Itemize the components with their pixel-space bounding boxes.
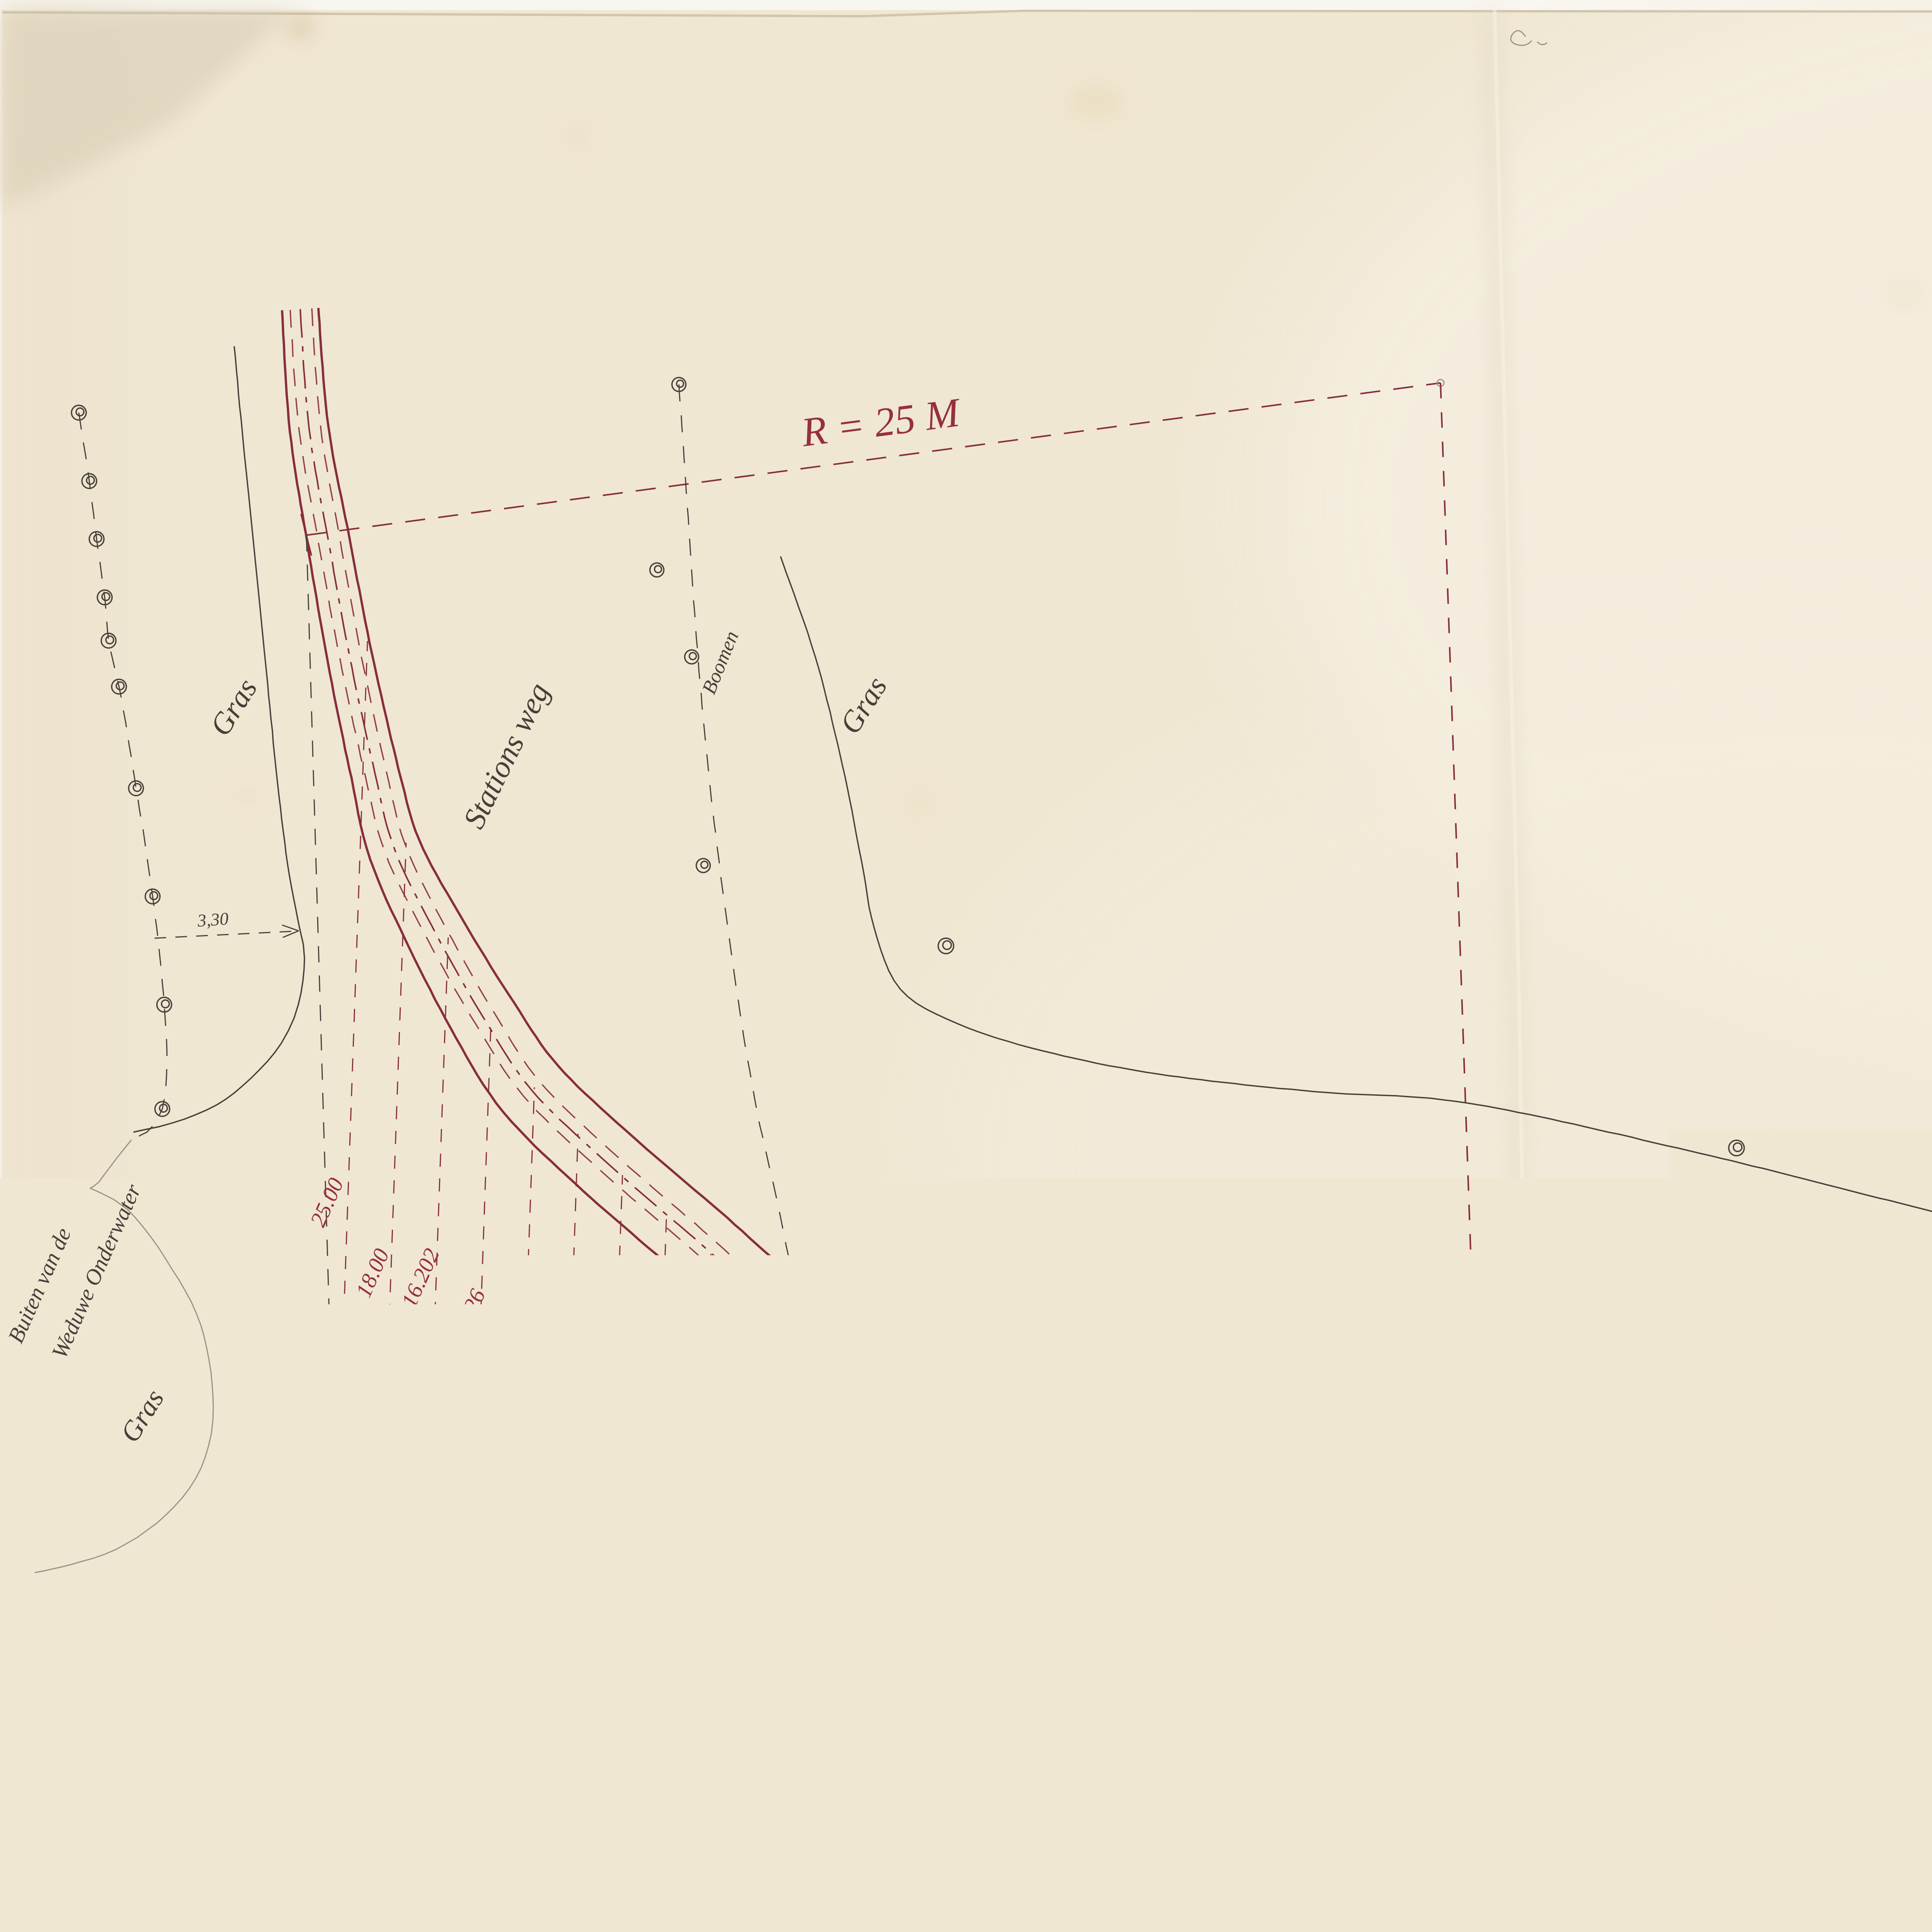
svg-text:3,30: 3,30 — [196, 908, 229, 930]
svg-text:13,00: 13,00 — [545, 1402, 586, 1423]
svg-text:39,00: 39,00 — [1631, 1333, 1678, 1357]
